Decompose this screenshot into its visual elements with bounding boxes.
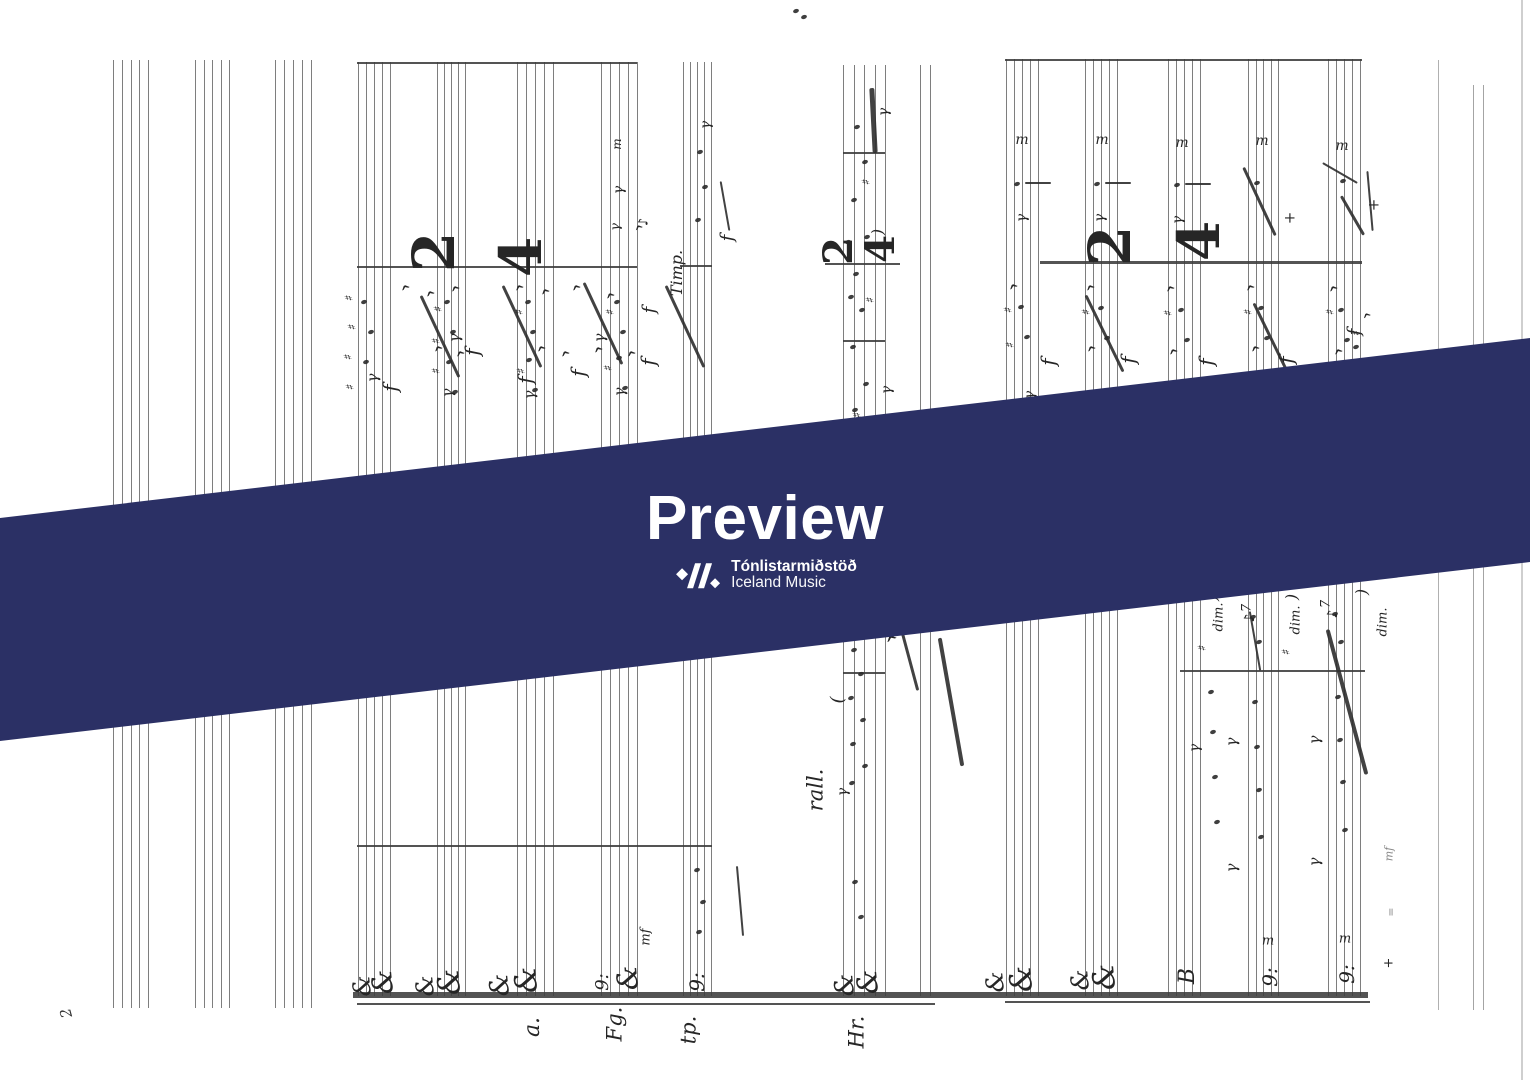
note-dot	[852, 271, 859, 277]
score-glyph: ♯	[1080, 308, 1093, 316]
score-glyph: γ	[1308, 858, 1323, 867]
score-glyph: γ	[366, 374, 381, 383]
note-dot	[1017, 304, 1024, 310]
score-glyph: 4	[492, 237, 550, 277]
note-dot	[1255, 639, 1262, 645]
beam-stroke	[1185, 183, 1211, 185]
score-glyph: Timp.	[669, 250, 685, 296]
score-glyph: ^	[1167, 347, 1182, 363]
score-glyph: ♯	[430, 337, 443, 345]
note-dot	[1334, 694, 1341, 700]
score-glyph: =	[1386, 907, 1397, 916]
note-dot	[693, 867, 700, 873]
note-dot	[859, 717, 866, 723]
note-dot	[1173, 182, 1180, 188]
score-glyph: f	[568, 369, 588, 376]
note-dot	[525, 357, 532, 363]
score-glyph: 7	[1320, 600, 1333, 608]
note-dot	[1213, 819, 1220, 825]
score-glyph: ♯	[864, 296, 877, 304]
score-glyph: &	[434, 967, 466, 996]
beam-stroke	[938, 638, 965, 767]
note-dot	[1013, 181, 1020, 187]
note-dot	[850, 197, 857, 203]
score-glyph: ♯	[1196, 644, 1209, 652]
beam-stroke	[1105, 182, 1131, 184]
score-glyph: γ	[523, 391, 538, 400]
score-glyph: ♪	[1243, 614, 1257, 623]
preview-page: 242424Timp.rall.a.Fg.tp.Hr.mfmfdim.dim.d…	[0, 0, 1530, 1080]
barline	[357, 62, 637, 64]
note-dot	[861, 763, 868, 769]
score-glyph: ♯	[430, 367, 443, 375]
score-glyph: ♯	[860, 178, 873, 186]
score-glyph: ^	[1007, 282, 1022, 298]
note-dot	[1336, 737, 1343, 743]
note-dot	[1341, 827, 1348, 833]
score-glyph: γ	[1171, 216, 1185, 224]
score-glyph: γ	[610, 223, 623, 231]
score-glyph: (	[829, 696, 847, 703]
note-dot	[619, 329, 626, 335]
score-glyph: m	[1255, 134, 1268, 148]
score-glyph: &	[613, 964, 643, 991]
score-glyph: &	[853, 968, 883, 995]
score-glyph: )	[1354, 589, 1370, 595]
beam-stroke	[1326, 629, 1369, 775]
note-dot	[1339, 178, 1346, 184]
note-dot	[1209, 729, 1216, 735]
score-glyph: ♯	[343, 294, 356, 302]
score-glyph: )	[1284, 594, 1300, 600]
score-glyph: &	[1006, 964, 1038, 993]
score-glyph: a.	[522, 1017, 544, 1037]
score-glyph: +	[1283, 212, 1298, 225]
score-glyph: 2	[405, 232, 463, 272]
brand-subtitle: Iceland Music	[731, 576, 857, 592]
beam-stroke	[869, 88, 877, 153]
score-glyph: ♯	[602, 364, 615, 372]
note-dot	[695, 929, 702, 935]
score-glyph: m	[1095, 133, 1108, 147]
note-dot	[792, 8, 799, 14]
score-glyph: ^	[1361, 310, 1375, 325]
preview-banner-content: Preview Tónlistarmiðstöð Iceland Music	[646, 488, 884, 592]
brand-name: Tónlistarmiðstöð	[731, 559, 857, 575]
note-dot	[1251, 699, 1258, 705]
score-glyph: ^	[1164, 284, 1179, 300]
score-glyph: +	[1383, 958, 1396, 969]
score-glyph: m	[611, 138, 623, 149]
score-glyph: 4	[861, 235, 901, 263]
note-dot	[696, 149, 703, 155]
score-glyph: Fg.	[605, 1007, 626, 1042]
note-dot	[849, 741, 856, 747]
score-glyph: γ	[1225, 864, 1240, 873]
note-dot	[1253, 744, 1260, 750]
barline	[843, 340, 885, 342]
note-dot	[1183, 337, 1190, 343]
note-dot	[862, 381, 869, 387]
barline	[1005, 59, 1362, 61]
score-glyph: dim.	[1377, 608, 1390, 637]
score-glyph: γ	[1308, 736, 1323, 745]
barline	[1005, 1001, 1370, 1003]
score-glyph: ♯	[342, 353, 355, 361]
score-glyph: ♯	[346, 323, 359, 331]
score-glyph: 9:	[1337, 964, 1357, 983]
note-dot	[1253, 180, 1260, 186]
score-glyph: tp.	[679, 1016, 700, 1045]
brand-logo: Tónlistarmiðstöð Iceland Music	[673, 559, 857, 592]
score-glyph: f	[719, 235, 737, 242]
score-glyph: γ	[612, 186, 626, 194]
note-dot	[1255, 787, 1262, 793]
score-glyph: f	[641, 307, 659, 314]
score-glyph: dim.	[1290, 606, 1303, 635]
note-dot	[694, 217, 701, 223]
beam-stroke	[736, 866, 744, 936]
note-dot	[524, 299, 531, 305]
score-glyph: ^	[592, 345, 607, 361]
score-glyph: m	[1339, 933, 1351, 946]
score-glyph: ^	[559, 349, 574, 365]
score-glyph: f	[1196, 358, 1216, 365]
score-glyph: rall.	[806, 769, 827, 812]
score-glyph: ♯	[1162, 309, 1175, 317]
score-glyph: ^	[1244, 283, 1259, 299]
note-dot	[1352, 344, 1359, 350]
score-glyph: )	[870, 229, 886, 235]
note-dot	[1211, 774, 1218, 780]
score-glyph: γ	[877, 108, 891, 116]
score-glyph: γ	[613, 388, 628, 397]
score-glyph: f	[1276, 356, 1296, 363]
beam-stroke	[901, 632, 919, 691]
score-glyph: mf	[640, 928, 653, 945]
score-glyph: ♯	[1242, 308, 1255, 316]
score-glyph: m	[1335, 139, 1348, 153]
score-glyph: +	[1367, 199, 1382, 212]
score-glyph: f	[1118, 356, 1138, 363]
score-glyph: 9:	[1260, 967, 1280, 986]
score-glyph: γ	[1188, 744, 1202, 752]
score-glyph: ♯	[344, 383, 357, 391]
score-glyph: f	[638, 358, 658, 365]
score-glyph: 9:	[687, 972, 707, 991]
beam-stroke	[720, 181, 731, 231]
score-glyph: &	[511, 965, 543, 994]
score-glyph: ♪	[1326, 610, 1340, 619]
note-dot	[443, 299, 450, 305]
note-dot	[1093, 181, 1100, 187]
score-glyph: &	[1089, 962, 1121, 991]
score-glyph: dim.	[1213, 603, 1226, 632]
score-glyph: γ	[448, 334, 463, 343]
barline	[357, 845, 712, 847]
score-glyph: γ	[441, 389, 456, 398]
note-dot	[699, 899, 706, 905]
score-glyph: ^	[604, 291, 619, 307]
barline	[843, 152, 885, 154]
score-glyph: ♪	[638, 218, 651, 226]
score-glyph: γ	[1225, 738, 1240, 747]
score-glyph: B	[1177, 968, 1199, 984]
note-dot	[861, 159, 868, 165]
note-dot	[849, 344, 856, 350]
score-glyph: f	[515, 376, 535, 383]
note-dot	[701, 184, 708, 190]
score-glyph: 4	[1170, 221, 1228, 261]
score-glyph: &	[368, 968, 398, 995]
brand-text: Tónlistarmiðstöð Iceland Music	[731, 559, 857, 592]
beam-stroke	[1025, 182, 1051, 184]
score-glyph: 7	[1241, 604, 1254, 612]
score-glyph: f	[1038, 358, 1058, 365]
score-glyph: ♯	[432, 305, 445, 313]
note-dot	[1097, 305, 1104, 311]
score-glyph: ^	[1327, 284, 1342, 300]
score-glyph: γ	[593, 334, 608, 343]
note-dot	[1343, 337, 1350, 343]
score-glyph: ♯	[604, 308, 617, 316]
score-glyph: ^	[399, 283, 414, 299]
score-glyph: ♯	[1280, 648, 1293, 656]
score-glyph: 2	[819, 237, 859, 265]
beam-stroke	[665, 285, 706, 368]
score-glyph: 2	[1081, 226, 1139, 266]
score-glyph: ^	[1085, 344, 1100, 360]
score-glyph: m	[1175, 136, 1188, 150]
note-dot	[853, 124, 860, 130]
score-glyph: mf	[1384, 847, 1395, 862]
note-dot	[800, 14, 807, 20]
score-glyph: ♯	[1324, 308, 1337, 316]
iceland-music-logo-icon	[673, 562, 720, 589]
score-glyph: ♯	[1002, 306, 1015, 314]
note-dot	[851, 879, 858, 885]
score-glyph: f	[380, 384, 400, 391]
score-glyph: 9:	[594, 973, 612, 991]
score-glyph: γ	[699, 121, 713, 129]
barline	[357, 1003, 935, 1005]
score-glyph: m	[1015, 133, 1028, 147]
note-dot	[850, 647, 857, 653]
score-glyph: γ	[1093, 214, 1107, 222]
score-glyph: γ	[880, 386, 894, 394]
score-glyph: m	[1262, 935, 1274, 948]
note-dot	[362, 359, 369, 365]
score-glyph: γ	[1015, 214, 1029, 222]
note-dot	[1207, 689, 1214, 695]
score-glyph: γ	[836, 788, 850, 796]
note-dot	[1339, 779, 1346, 785]
preview-label: Preview	[646, 488, 884, 550]
score-glyph: Hr.	[847, 1016, 868, 1049]
